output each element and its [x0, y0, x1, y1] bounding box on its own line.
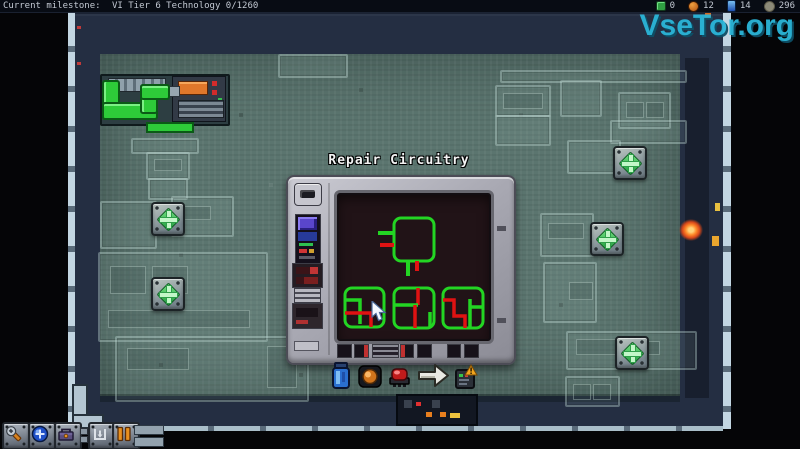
- bezel-bar: [294, 341, 319, 351]
- blueprint-machine: [495, 85, 551, 117]
- wall-amber-light: [712, 236, 719, 246]
- connector-slot: [447, 344, 461, 358]
- build-slot-button[interactable]: [151, 202, 185, 236]
- blueprint-detail: [127, 348, 189, 370]
- wall-yellow-light: [715, 203, 720, 211]
- amber-readout: [309, 249, 314, 253]
- vent-grille: [294, 288, 321, 303]
- dark-module: [292, 303, 323, 329]
- circuit-tile-2[interactable]: [394, 288, 434, 328]
- blueprint-pipe: [610, 120, 687, 144]
- floor-speckles: [100, 54, 102, 56]
- mouse-cursor: [371, 301, 388, 327]
- purple-screen: [298, 217, 317, 230]
- blueprint-machine: [278, 54, 348, 78]
- console-screen: [178, 81, 208, 95]
- build-slot-button[interactable]: [615, 336, 649, 370]
- console-red-light2: [212, 90, 217, 95]
- crt-screen: [334, 190, 494, 344]
- blueprint-detail: [593, 384, 611, 400]
- red-chip-icon: [387, 365, 412, 388]
- blueprint-machine: [560, 80, 602, 117]
- milestone-label: Current milestone:: [3, 0, 101, 12]
- circuit-screen[interactable]: [334, 190, 494, 344]
- console-knob: [404, 400, 412, 408]
- built-machine[interactable]: [100, 70, 230, 132]
- blueprint-machine: [565, 376, 620, 407]
- circuit-tile-3[interactable]: [443, 288, 483, 328]
- pause-doors-icon: [114, 424, 134, 444]
- cassette-button[interactable]: [294, 183, 322, 206]
- bezel-tick: [497, 318, 506, 323]
- blueprint-detail: [573, 384, 591, 400]
- console-yellow-bar: [450, 413, 460, 418]
- blueprint-detail: [108, 310, 250, 328]
- module-red-bar: [296, 320, 308, 324]
- connector-grille: [372, 344, 399, 358]
- red-meter: [292, 263, 323, 288]
- trace-red: [443, 300, 465, 328]
- green-pipe-h2: [140, 84, 170, 100]
- item-orange-orb[interactable]: [358, 365, 382, 392]
- bezel-tick: [497, 226, 506, 231]
- hull-right-edge: [723, 12, 731, 429]
- hull-pipe-segment: [134, 425, 164, 435]
- status-display: [295, 214, 321, 264]
- plus-icon-bar: [159, 292, 178, 298]
- chip-outline: [394, 218, 434, 261]
- build-slot-button[interactable]: [590, 222, 624, 256]
- blueprint-machine: [146, 152, 190, 180]
- console-red-light: [212, 81, 217, 86]
- plus-icon-bar: [621, 161, 640, 167]
- connector-slot: [337, 344, 352, 358]
- dialog-title: Repair Circuitry: [286, 153, 512, 168]
- repair-tool-icon: [4, 424, 24, 444]
- console-orange-dot: [440, 412, 446, 417]
- place-structure-icon: [90, 424, 110, 444]
- blueprint-machine: [540, 213, 594, 257]
- gray-readout: [299, 256, 315, 259]
- hull-pipe-segment: [134, 437, 164, 447]
- green-pipe-base: [146, 122, 194, 133]
- connector-slot: [400, 344, 414, 358]
- meter-row: [296, 277, 318, 284]
- wall-orange-light: [679, 219, 703, 241]
- blueprint-machine: [495, 115, 551, 146]
- hull-left-edge: [68, 12, 75, 429]
- blueprint-detail: [576, 339, 618, 355]
- toolbar-scanner-button[interactable]: [28, 422, 56, 449]
- toolbar-repair-button[interactable]: [2, 422, 30, 449]
- blueprint-detail: [154, 159, 182, 171]
- connector-slot: [464, 344, 479, 358]
- site-watermark: VseTor.org: [640, 9, 794, 43]
- plus-icon-bar: [159, 217, 178, 223]
- console-red-dot: [416, 402, 421, 406]
- bezel-groove: [328, 183, 330, 355]
- milestone-value: VI Tier 6 Technology 0/1260: [112, 0, 258, 12]
- blue-band: [298, 232, 317, 241]
- red-readout: [299, 249, 307, 253]
- repair-monitor: [286, 175, 516, 365]
- left-wall-red-light2: [77, 62, 81, 65]
- blueprint-frame: [100, 201, 157, 249]
- item-proceed-arrow[interactable]: [417, 362, 450, 393]
- blue-canister-icon: [330, 362, 352, 390]
- scanner-orb-icon: [30, 424, 50, 444]
- left-wall-red-light: [77, 26, 81, 29]
- game-screen: Current milestone: VI Tier 6 Technology …: [0, 0, 800, 449]
- plus-icon-bar: [598, 237, 617, 243]
- console-grille: [178, 100, 224, 118]
- plus-icon-bar: [623, 351, 642, 357]
- console-orange-dot: [426, 412, 432, 417]
- device-warning-icon: [454, 364, 478, 390]
- connector-slot: [417, 344, 432, 358]
- meter-row: [296, 267, 318, 274]
- module-window: [296, 308, 318, 317]
- blueprint-detail: [626, 102, 644, 118]
- toolbox-icon: [56, 424, 76, 444]
- cursor-arrow-icon: [371, 301, 388, 323]
- build-slot-button[interactable]: [151, 277, 185, 311]
- item-device-warning[interactable]: [454, 364, 478, 394]
- blueprint-machine: [115, 336, 309, 402]
- blueprint-detail: [646, 102, 664, 118]
- toolbar-toolbox-button[interactable]: [54, 422, 82, 449]
- item-red-chip[interactable]: [387, 365, 412, 392]
- blueprint-detail: [503, 93, 543, 109]
- cassette-slot: [300, 190, 315, 198]
- build-slot-button[interactable]: [613, 146, 647, 180]
- hull-bottom-edge: [110, 426, 723, 431]
- toolbar-divider: [80, 436, 88, 443]
- blueprint-detail: [548, 223, 584, 239]
- console-knob: [432, 400, 440, 408]
- orange-orb-icon: [358, 365, 382, 388]
- blueprint-machine: [543, 262, 597, 323]
- item-blue-canister[interactable]: [330, 362, 352, 394]
- proceed-arrow-icon: [417, 362, 450, 389]
- toolbar-divider: [80, 428, 88, 435]
- blueprint-detail: [110, 266, 146, 294]
- green-readout: [299, 243, 313, 246]
- wall-console: [396, 394, 478, 426]
- connector-slot: [354, 344, 369, 358]
- blueprint-detail: [569, 282, 593, 300]
